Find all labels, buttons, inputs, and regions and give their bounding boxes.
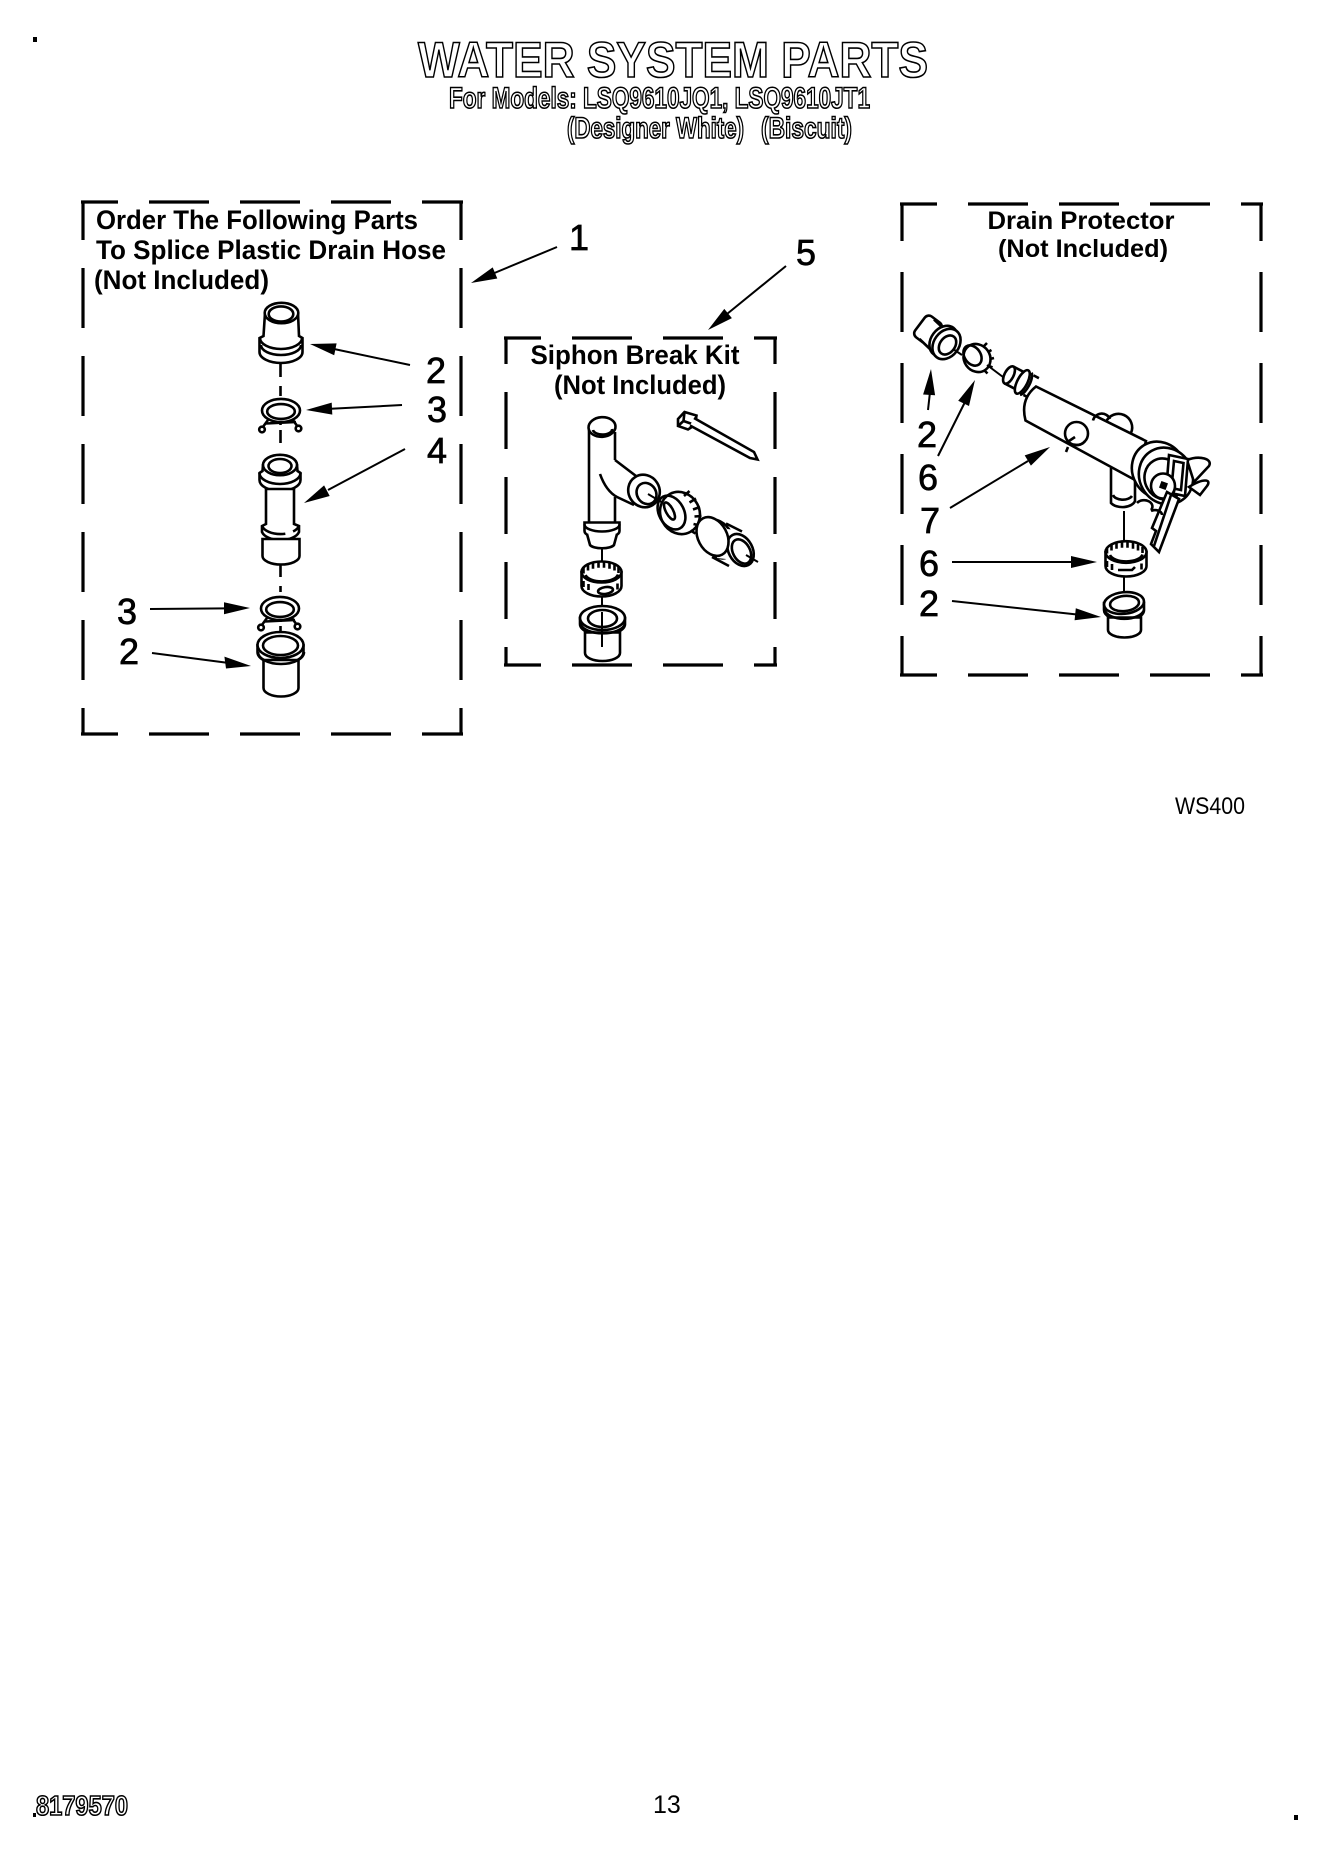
svg-text:(Not Included): (Not Included) bbox=[554, 370, 726, 400]
svg-text:13: 13 bbox=[653, 1791, 681, 1819]
svg-text:WS400: WS400 bbox=[1175, 793, 1245, 820]
svg-text:2: 2 bbox=[917, 414, 937, 455]
svg-text:5: 5 bbox=[796, 232, 816, 273]
svg-text:7: 7 bbox=[920, 500, 940, 541]
svg-text:6: 6 bbox=[919, 543, 939, 584]
svg-text:6: 6 bbox=[918, 457, 938, 498]
svg-text:(Designer White): (Designer White) bbox=[567, 112, 744, 145]
svg-text:To Splice Plastic Drain Hose: To Splice Plastic Drain Hose bbox=[96, 235, 446, 265]
svg-text:4: 4 bbox=[427, 430, 447, 471]
svg-text:3: 3 bbox=[427, 389, 447, 430]
svg-text:Siphon Break Kit: Siphon Break Kit bbox=[531, 340, 740, 370]
svg-text:2: 2 bbox=[919, 583, 939, 624]
svg-text:Order The Following Parts: Order The Following Parts bbox=[96, 205, 418, 235]
svg-text:(Not Included): (Not Included) bbox=[94, 265, 269, 295]
svg-text:2: 2 bbox=[119, 631, 139, 672]
svg-text:(Biscuit): (Biscuit) bbox=[761, 112, 852, 145]
svg-text:8179570: 8179570 bbox=[36, 1790, 128, 1821]
svg-text:1: 1 bbox=[569, 217, 589, 258]
svg-text:For Models: LSQ9610JQ1, LSQ961: For Models: LSQ9610JQ1, LSQ9610JT1 bbox=[449, 82, 870, 115]
svg-text:(Not Included): (Not Included) bbox=[998, 235, 1168, 263]
svg-text:Drain Protector: Drain Protector bbox=[988, 207, 1175, 235]
svg-text:2: 2 bbox=[426, 350, 446, 391]
svg-text:WATER SYSTEM PARTS: WATER SYSTEM PARTS bbox=[418, 32, 928, 88]
svg-text:3: 3 bbox=[117, 591, 137, 632]
